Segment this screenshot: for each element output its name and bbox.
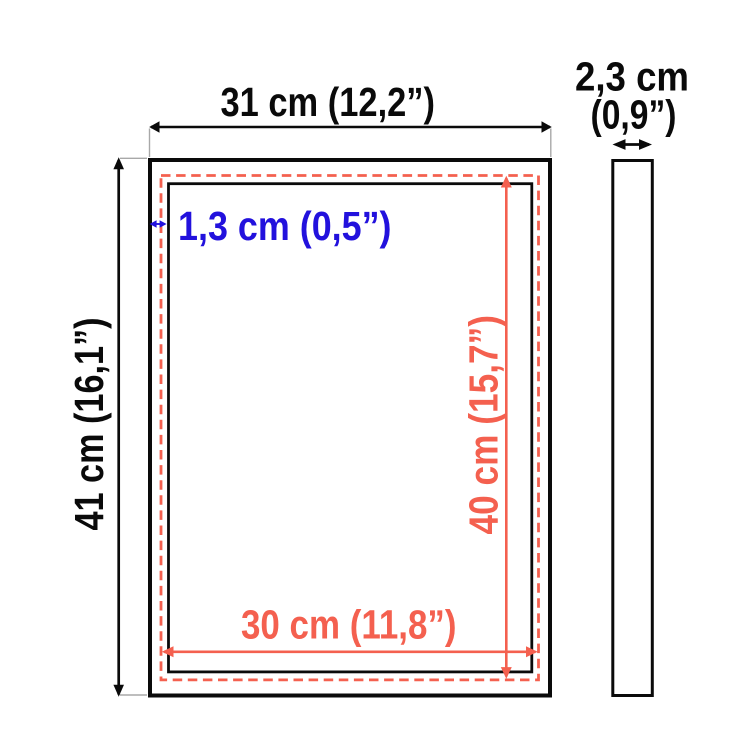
svg-text:1,3 cm (0,5”): 1,3 cm (0,5”) xyxy=(178,203,392,249)
svg-text:40 cm (15,7”): 40 cm (15,7”) xyxy=(461,315,507,535)
svg-text:31 cm (12,2”): 31 cm (12,2”) xyxy=(221,79,436,125)
svg-text:30 cm (11,8”): 30 cm (11,8”) xyxy=(241,601,457,647)
svg-text:(0,9”): (0,9”) xyxy=(591,92,677,138)
svg-text:41 cm (16,1”): 41 cm (16,1”) xyxy=(66,318,112,531)
